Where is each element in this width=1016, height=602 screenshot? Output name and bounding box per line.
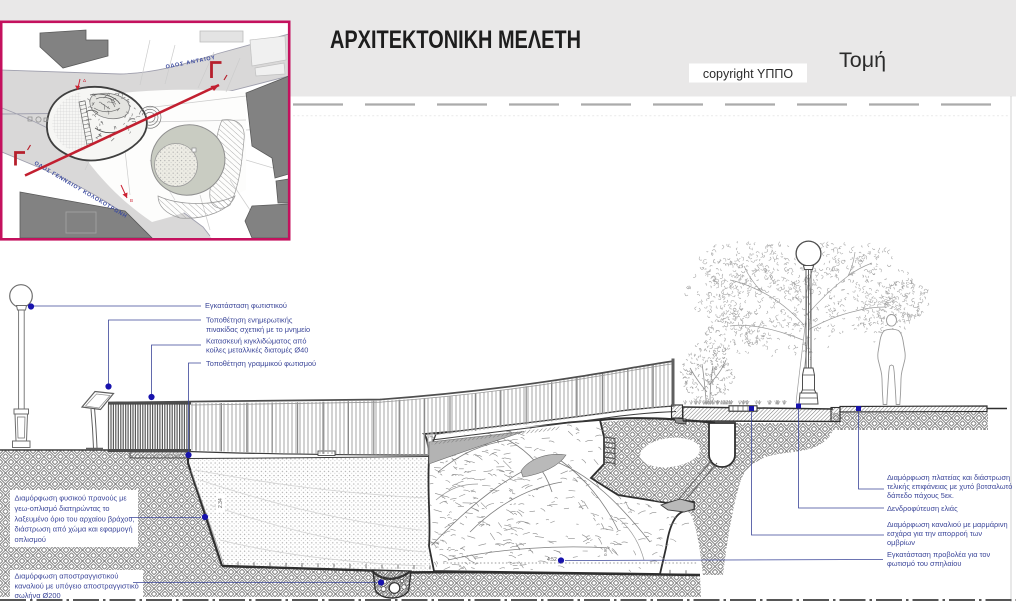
svg-text:Εγκατάσταση προβολέα για τονφω: Εγκατάσταση προβολέα για τονφωτισμό του … — [887, 550, 991, 568]
svg-text:Τοποθέτηση γραμμικού φωτισμού: Τοποθέτηση γραμμικού φωτισμού — [206, 359, 316, 368]
svg-text:4.52: 4.52 — [547, 557, 557, 563]
svg-text:Εγκατάσταση φωτιστικού: Εγκατάσταση φωτιστικού — [205, 301, 287, 310]
svg-text:Διαμόρφωση καναλιού με μαρμάρι: Διαμόρφωση καναλιού με μαρμάρινηεσχάρα γ… — [887, 520, 1008, 547]
svg-text:Δ: Δ — [83, 78, 86, 83]
svg-text:Δενδροφύτευση ελιάς: Δενδροφύτευση ελιάς — [887, 504, 958, 513]
svg-text:Τομή: Τομή — [839, 48, 886, 72]
svg-text:Τοποθέτηση ενημερωτικήςπινακίδ: Τοποθέτηση ενημερωτικήςπινακίδας σχετική… — [206, 316, 310, 335]
svg-text:Διαμόρφωση πλατείας και διάστρ: Διαμόρφωση πλατείας και διάστρωσητελικής… — [887, 473, 1012, 500]
svg-text:2.34: 2.34 — [218, 498, 224, 508]
svg-text:ΑΡΧΙΤΕΚΤΟΝΙΚΗ ΜΕΛΕΤΗ: ΑΡΧΙΤΕΚΤΟΝΙΚΗ ΜΕΛΕΤΗ — [330, 26, 581, 54]
svg-text:0.90: 0.90 — [603, 547, 608, 556]
svg-text:Κατασκευή κιγκλιδώματος απόκοί: Κατασκευή κιγκλιδώματος απόκοίλες μεταλλ… — [206, 337, 308, 355]
svg-text:copyright ΥΠΠΟ: copyright ΥΠΠΟ — [703, 67, 794, 81]
svg-text:Β: Β — [130, 198, 133, 203]
